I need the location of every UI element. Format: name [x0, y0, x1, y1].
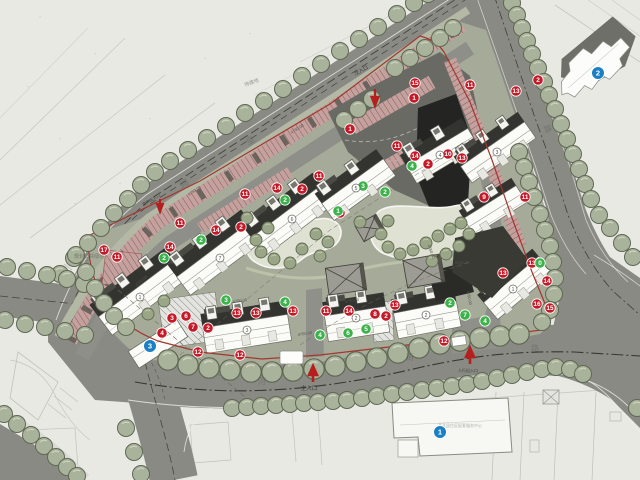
svg-text:4: 4 — [410, 163, 414, 170]
svg-text:1: 1 — [412, 95, 416, 102]
svg-text:9: 9 — [482, 194, 486, 201]
svg-text:14: 14 — [166, 244, 174, 251]
svg-text:1: 1 — [512, 287, 515, 293]
svg-text:7: 7 — [219, 256, 222, 262]
svg-text:2: 2 — [355, 316, 358, 322]
svg-text:6: 6 — [291, 217, 294, 223]
svg-text:11: 11 — [316, 173, 323, 180]
svg-text:路: 路 — [531, 343, 539, 353]
svg-text:河: 河 — [258, 376, 266, 386]
svg-text:7: 7 — [191, 324, 195, 331]
svg-text:3: 3 — [170, 315, 174, 322]
svg-text:12: 12 — [440, 338, 448, 345]
svg-text:3: 3 — [148, 342, 152, 351]
svg-text:2: 2 — [199, 237, 203, 244]
svg-text:2: 2 — [536, 77, 540, 84]
svg-text:15: 15 — [546, 305, 554, 312]
svg-text:11: 11 — [522, 194, 529, 201]
svg-text:1: 1 — [348, 126, 352, 133]
svg-text:13: 13 — [499, 270, 507, 277]
svg-text:2: 2 — [239, 224, 243, 231]
svg-text:12: 12 — [194, 349, 202, 356]
svg-text:12: 12 — [236, 352, 244, 359]
svg-text:13: 13 — [512, 88, 520, 95]
svg-text:13: 13 — [391, 302, 399, 309]
svg-text:4750.00: 4750.00 — [455, 260, 470, 265]
svg-text:11: 11 — [242, 191, 249, 198]
svg-text:0: 0 — [538, 260, 542, 267]
svg-text:2: 2 — [425, 313, 428, 319]
svg-text:11: 11 — [394, 143, 401, 150]
svg-text:4: 4 — [318, 332, 322, 339]
svg-text:3: 3 — [224, 297, 228, 304]
svg-text:3: 3 — [246, 328, 249, 334]
svg-text:6: 6 — [346, 330, 350, 337]
svg-text:6: 6 — [184, 313, 188, 320]
svg-text:2: 2 — [162, 255, 166, 262]
svg-text:3: 3 — [361, 183, 365, 190]
svg-text:13: 13 — [458, 155, 466, 162]
svg-text:17: 17 — [100, 247, 108, 254]
svg-text:11: 11 — [114, 254, 121, 261]
svg-text:10: 10 — [444, 151, 452, 158]
svg-text:7: 7 — [463, 312, 467, 319]
svg-text:4: 4 — [160, 330, 164, 337]
svg-text:11: 11 — [323, 308, 330, 315]
svg-text:5: 5 — [364, 326, 368, 333]
svg-text:2: 2 — [206, 325, 210, 332]
svg-text:13: 13 — [233, 310, 241, 317]
svg-text:人行出入口: 人行出入口 — [458, 367, 478, 373]
svg-text:11: 11 — [467, 82, 474, 89]
svg-text:13: 13 — [289, 308, 297, 315]
svg-text:2: 2 — [596, 69, 600, 78]
svg-text:2: 2 — [384, 313, 388, 320]
svg-text:4: 4 — [283, 299, 287, 306]
svg-text:14: 14 — [345, 308, 353, 315]
svg-text:4: 4 — [439, 153, 442, 159]
svg-text:8: 8 — [373, 311, 377, 318]
svg-text:2: 2 — [426, 161, 430, 168]
svg-text:2: 2 — [448, 300, 452, 307]
svg-text:11: 11 — [177, 220, 184, 227]
svg-text:2: 2 — [300, 186, 304, 193]
svg-text:主入口: 主入口 — [301, 384, 318, 392]
svg-text:16: 16 — [533, 301, 541, 308]
svg-text:3: 3 — [496, 150, 499, 156]
svg-text:1: 1 — [438, 428, 442, 437]
svg-text:1: 1 — [139, 295, 142, 301]
svg-text:2: 2 — [383, 189, 387, 196]
svg-text:街: 街 — [406, 352, 414, 362]
svg-text:14: 14 — [543, 278, 551, 285]
svg-text:14: 14 — [273, 185, 281, 192]
svg-text:1: 1 — [336, 208, 340, 215]
svg-text:2: 2 — [283, 197, 287, 204]
svg-text:4: 4 — [483, 318, 487, 325]
svg-text:14: 14 — [212, 227, 220, 234]
svg-text:14: 14 — [411, 153, 419, 160]
svg-text:5: 5 — [355, 186, 358, 192]
svg-text:15: 15 — [411, 80, 419, 87]
svg-text:13: 13 — [252, 310, 260, 317]
